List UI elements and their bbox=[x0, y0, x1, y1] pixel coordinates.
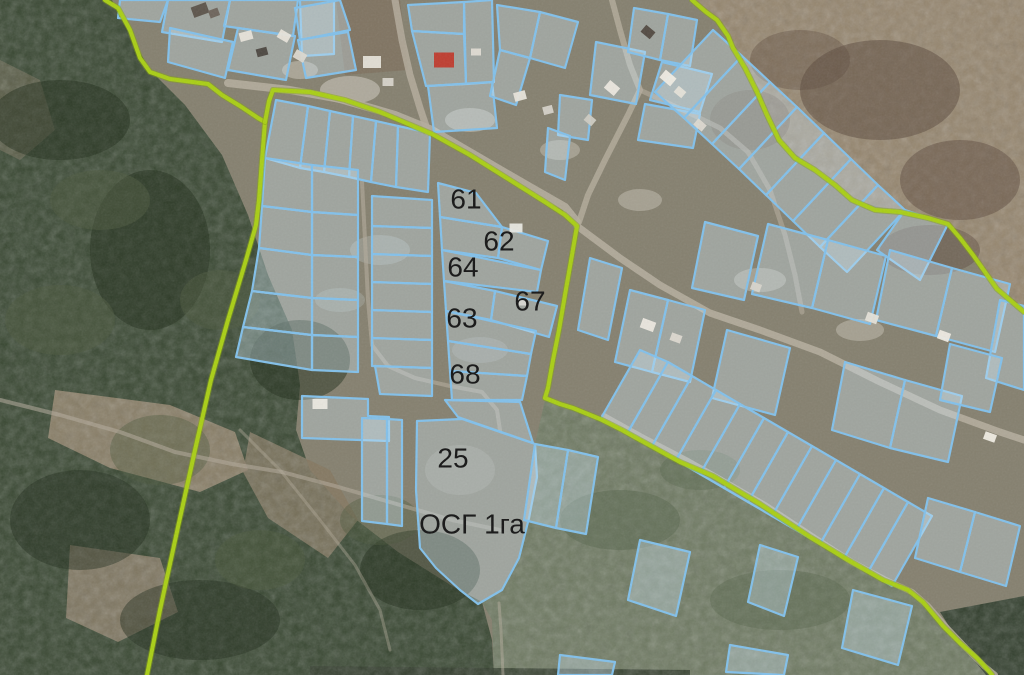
map-viewport[interactable]: 61626467636825ОСГ 1га bbox=[0, 0, 1024, 675]
map-canvas: 61626467636825ОСГ 1га bbox=[0, 0, 1024, 675]
grain-overlay bbox=[0, 0, 1024, 675]
